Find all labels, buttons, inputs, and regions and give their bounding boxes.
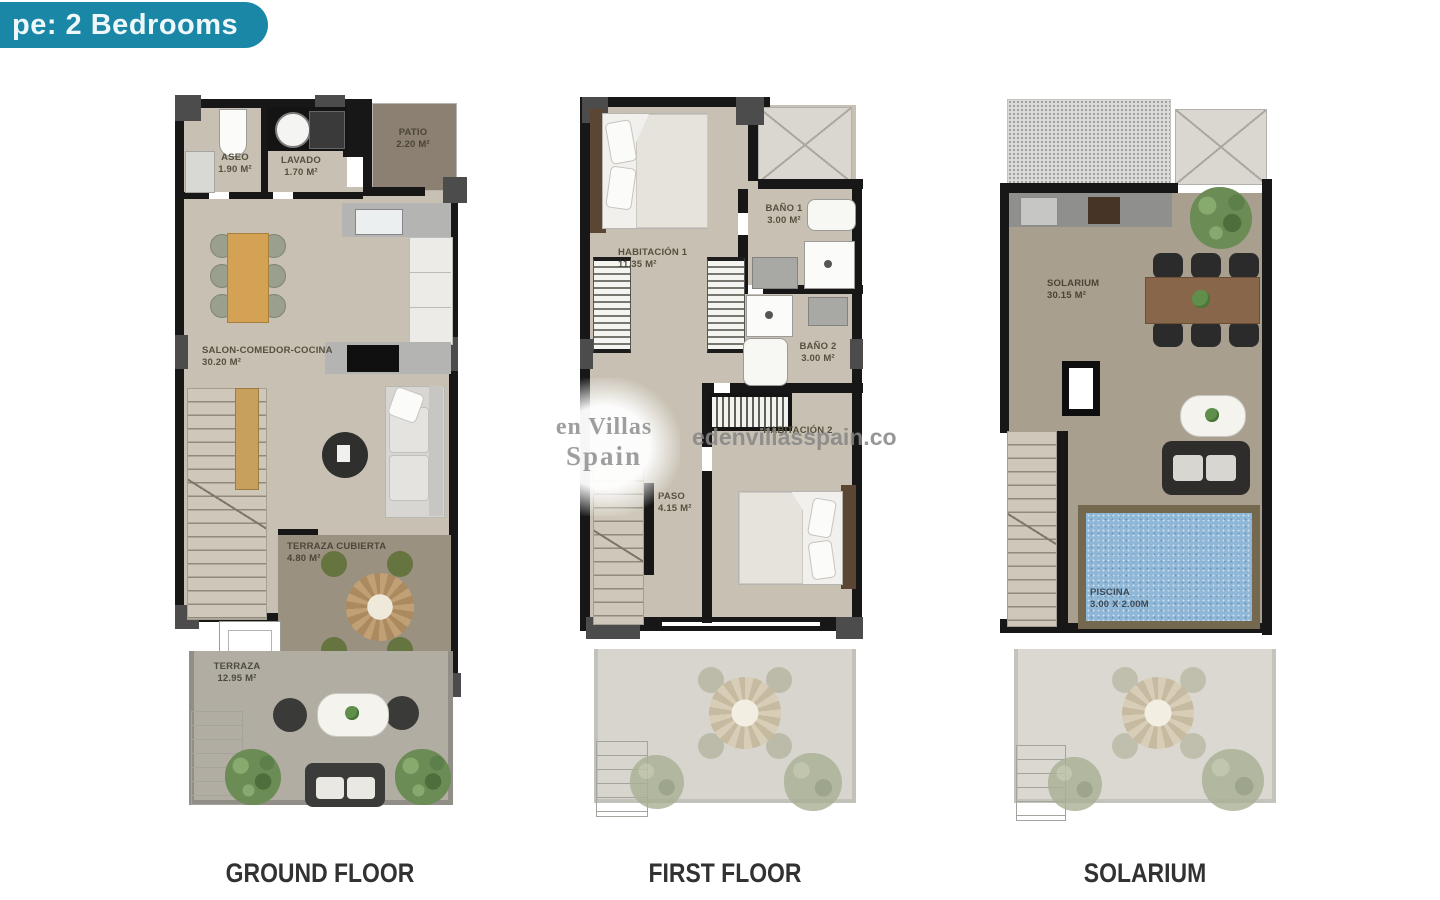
pillar bbox=[443, 177, 467, 203]
bar-appliance bbox=[1088, 197, 1120, 224]
pillar bbox=[175, 335, 188, 369]
dryer bbox=[309, 111, 345, 149]
stair-wood-plank bbox=[235, 388, 259, 490]
door-gap bbox=[209, 192, 229, 199]
duvet bbox=[739, 492, 803, 584]
duvet bbox=[636, 114, 708, 228]
bush bbox=[630, 755, 684, 809]
wall bbox=[315, 192, 363, 199]
room-label-bano1: BAÑO 1 3.00 m² bbox=[756, 203, 812, 228]
room-label-solarium: SOLARIUM 30.15 m² bbox=[1047, 278, 1099, 303]
bush bbox=[225, 749, 281, 805]
watermark-logo-line1: en Villas bbox=[528, 378, 680, 441]
door-gap bbox=[273, 192, 293, 199]
pillar bbox=[736, 97, 764, 125]
plant bbox=[1192, 290, 1210, 308]
wall bbox=[363, 187, 425, 196]
skylight bbox=[1062, 361, 1100, 416]
sofa-cushion bbox=[389, 455, 429, 501]
bush bbox=[784, 753, 842, 811]
wall bbox=[1262, 179, 1272, 635]
wall bbox=[363, 99, 372, 196]
cabinet-divider bbox=[409, 272, 451, 273]
pillow bbox=[807, 540, 836, 581]
room-label-bano2: BAÑO 2 3.00 m² bbox=[788, 341, 848, 366]
bathtub bbox=[807, 199, 856, 231]
pillar bbox=[850, 339, 863, 369]
room-label-habitacion1: HABITACIÓN 1 11.35 m² bbox=[618, 247, 687, 272]
gravel-roof-area bbox=[1007, 99, 1171, 189]
bush bbox=[1048, 757, 1102, 811]
room-label-terraza: TERRAZA 12.95 m² bbox=[205, 661, 269, 686]
bar-sink bbox=[1020, 197, 1058, 226]
washing-machine bbox=[275, 112, 311, 148]
chair bbox=[1229, 253, 1259, 279]
kitchen-sink bbox=[355, 209, 403, 235]
chair bbox=[387, 551, 413, 577]
pillar bbox=[175, 95, 201, 121]
bathroom-sink bbox=[808, 297, 848, 326]
chair bbox=[1153, 321, 1183, 347]
sofa-cushion bbox=[1173, 455, 1203, 481]
stove bbox=[347, 345, 399, 372]
plant bbox=[345, 706, 359, 720]
wardrobe bbox=[707, 257, 745, 353]
sofa-cushion bbox=[1206, 455, 1236, 481]
watermark-logo-line2: Spain bbox=[528, 441, 680, 472]
chair bbox=[1153, 253, 1183, 279]
toilet bbox=[219, 109, 247, 157]
room-label-terraza-cubierta: TERRAZA CUBIERTA 4.80 m² bbox=[287, 541, 386, 566]
room-label-patio: PATIO 2.20 m² bbox=[380, 127, 446, 152]
door-gap bbox=[347, 157, 363, 187]
wall bbox=[1000, 183, 1178, 193]
door-gap bbox=[738, 213, 748, 235]
room-label-piscina: PISCINA 3.00 x 2.00m bbox=[1090, 587, 1149, 612]
watermark-url: edenvillasspain.co bbox=[692, 424, 897, 451]
solarium-plan: SOLARIUM 30.15 m² PISCINA 3.00 x 2.00m bbox=[1000, 95, 1290, 810]
patio-void bbox=[758, 107, 852, 183]
kitchen-cabinets bbox=[409, 237, 453, 345]
room-label-lavado: LAVADO 1.70 m² bbox=[271, 155, 331, 180]
wall bbox=[182, 192, 315, 199]
chair bbox=[1191, 321, 1221, 347]
pillar bbox=[836, 617, 863, 639]
outdoor-chair bbox=[385, 696, 419, 730]
bathroom-sink bbox=[752, 257, 798, 289]
outdoor-chair bbox=[273, 698, 307, 732]
pillar bbox=[580, 339, 593, 369]
plant bbox=[1205, 408, 1219, 422]
wall bbox=[758, 179, 863, 189]
dining-table bbox=[227, 233, 269, 323]
round-table bbox=[346, 573, 414, 641]
sofa-cushion bbox=[316, 777, 344, 799]
chair bbox=[1191, 253, 1221, 279]
title-ground-floor: GROUND FLOOR bbox=[197, 858, 444, 889]
wall bbox=[1000, 183, 1009, 433]
sofa-cushion bbox=[347, 777, 375, 799]
title-solarium: SOLARIUM bbox=[1022, 858, 1269, 889]
coffee-table-tray bbox=[337, 445, 350, 462]
window-strip bbox=[662, 622, 820, 626]
shower-drain bbox=[765, 311, 773, 319]
round-table bbox=[709, 677, 781, 749]
bush bbox=[1202, 749, 1264, 811]
bed-headboard bbox=[841, 485, 856, 589]
ground-floor-plan: ASEO 1.90 m² LAVADO 1.70 m² PATIO 2.20 m… bbox=[175, 95, 465, 810]
plan-type-badge: pe: 2 Bedrooms bbox=[0, 2, 268, 48]
chair bbox=[1229, 321, 1259, 347]
shower-drain bbox=[824, 260, 832, 268]
bush bbox=[395, 749, 451, 805]
room-label-aseo: ASEO 1.90 m² bbox=[207, 152, 263, 177]
room-label-salon: SALON-COMEDOR-COCINA 30.20 m² bbox=[202, 345, 333, 370]
title-first-floor: FIRST FLOOR bbox=[602, 858, 849, 889]
door-gap bbox=[714, 383, 730, 393]
watermark-logo: en Villas Spain bbox=[528, 378, 680, 516]
patio-void bbox=[1175, 109, 1267, 185]
floorplan-page: pe: 2 Bedrooms bbox=[0, 0, 1440, 900]
round-table bbox=[1122, 677, 1194, 749]
bathtub bbox=[743, 338, 788, 386]
plant bbox=[1190, 187, 1252, 249]
cabinet-divider bbox=[409, 307, 451, 308]
sofa-backrest bbox=[429, 386, 443, 516]
staircase bbox=[1007, 431, 1057, 627]
